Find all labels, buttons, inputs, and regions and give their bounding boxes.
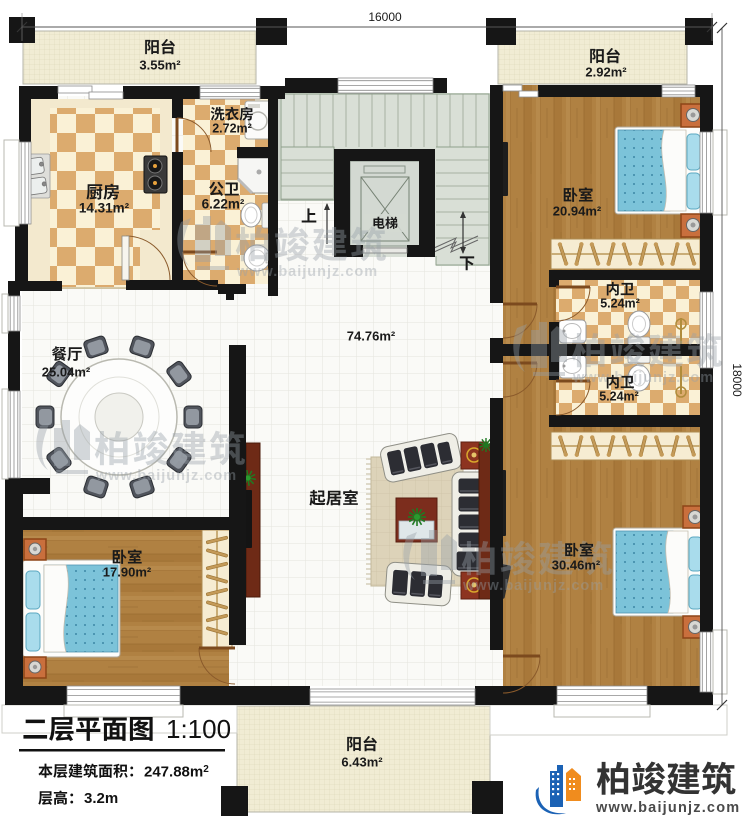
svg-text:16000: 16000 xyxy=(368,10,402,24)
svg-text:www.baijunjz.com: www.baijunjz.com xyxy=(595,800,740,816)
svg-text:3.2m: 3.2m xyxy=(84,790,118,807)
svg-text:1:100: 1:100 xyxy=(166,714,231,744)
svg-text:30.46m²: 30.46m² xyxy=(552,558,601,573)
svg-text:20.94m²: 20.94m² xyxy=(553,204,602,219)
svg-text:2.72m²: 2.72m² xyxy=(212,121,252,135)
svg-text:17.90m²: 17.90m² xyxy=(103,565,152,580)
svg-text:6.43m²: 6.43m² xyxy=(341,755,383,770)
svg-text:5.24m²: 5.24m² xyxy=(599,389,639,403)
svg-text:2.92m²: 2.92m² xyxy=(585,65,627,80)
svg-text:3.55m²: 3.55m² xyxy=(139,58,181,73)
svg-text:18000: 18000 xyxy=(730,363,744,397)
svg-text:6.22m²: 6.22m² xyxy=(202,197,245,212)
svg-text:247.88m2: 247.88m2 xyxy=(144,764,209,781)
svg-text:25.04m²: 25.04m² xyxy=(42,365,91,380)
svg-text:74.76m²: 74.76m² xyxy=(347,329,396,344)
svg-text:14.31m²: 14.31m² xyxy=(79,201,130,216)
svg-text:5.24m²: 5.24m² xyxy=(600,296,640,310)
